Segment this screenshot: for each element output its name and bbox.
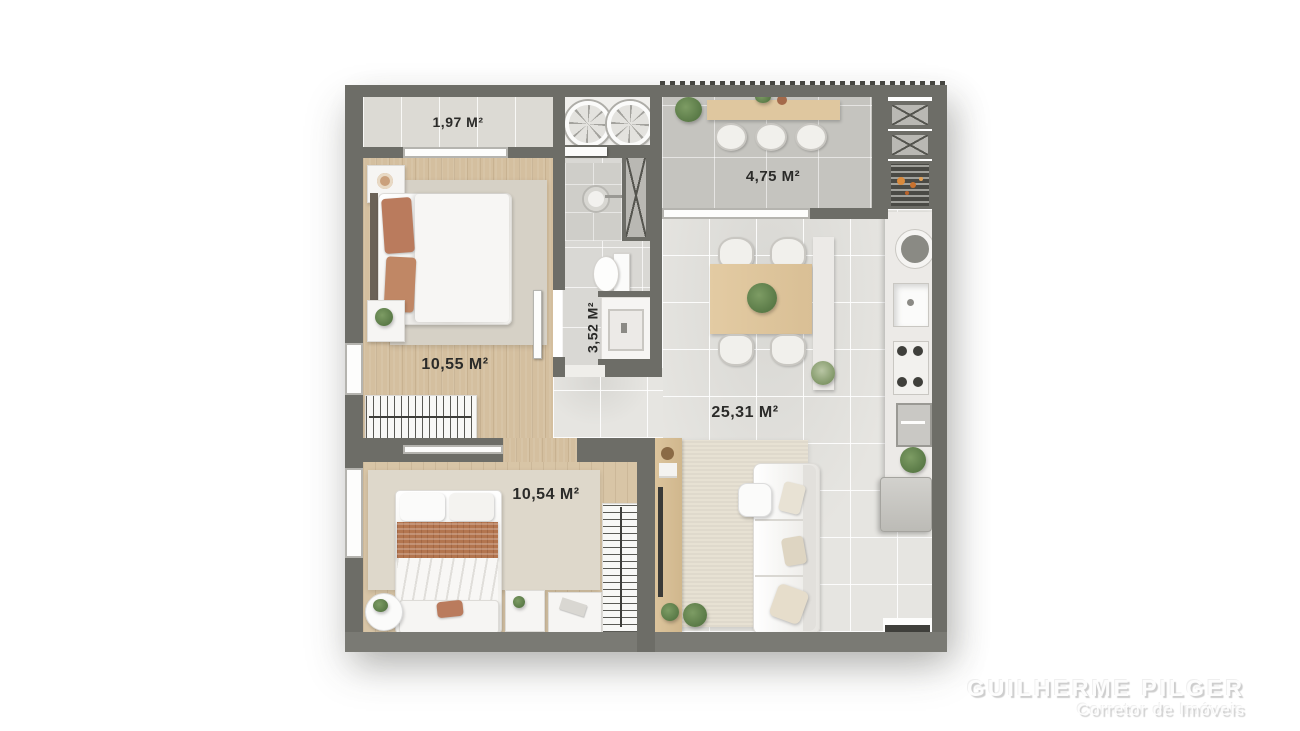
duct-shaft (888, 101, 932, 129)
dryer-drum (607, 101, 653, 147)
wardrobe-rail (369, 416, 471, 418)
shower-head (582, 185, 610, 213)
balcony-divider-wall (508, 147, 553, 158)
duct-shaft (622, 150, 650, 241)
kitchen-plant (900, 447, 926, 473)
bar-counter (707, 100, 840, 120)
wardrobe-rail (620, 507, 622, 627)
laundry-left-wall (553, 97, 565, 147)
bathroom-bottom-wall (605, 365, 662, 377)
plant (375, 308, 393, 326)
island-flowers (811, 361, 835, 385)
laundry-shelf (565, 147, 607, 156)
top-wall (345, 85, 947, 97)
terrace-sliding-door (662, 208, 810, 219)
entry-door-leaf (885, 625, 930, 632)
bedroom1-area-label: 10,55 M² (385, 355, 525, 375)
bathroom-area-label: 3,52 M² (565, 298, 620, 358)
bedroom2-window (345, 468, 363, 558)
watermark-name: GUILHERME PILGER (967, 676, 1245, 700)
oven-handle (901, 421, 925, 424)
bedroom1-right-wall (553, 147, 565, 290)
bench-pillow (436, 600, 464, 619)
bedroom2-sliding-door (403, 445, 503, 454)
sink-faucet (907, 299, 914, 306)
duct-shaft (888, 131, 932, 159)
terrace-plant (675, 97, 702, 122)
bed1-duvet (415, 194, 509, 322)
nightstand-mirror (377, 173, 393, 189)
watermark-title: Corretor de Imóveis (967, 700, 1245, 720)
living-area-label: 25,31 M² (675, 403, 815, 423)
burner (913, 346, 923, 356)
bedroom2-top-wall (577, 438, 637, 462)
counter-bowl (896, 230, 934, 268)
apartment-floorplan: 1,97 M² 4,75 M² 10,55 M² 3,52 M² 25,31 M… (345, 85, 947, 652)
side-table (738, 483, 772, 517)
table-centerpiece-plant (747, 283, 777, 313)
bar-stool (755, 123, 787, 151)
tv-screen (658, 487, 663, 597)
hall-wall-stub (553, 368, 565, 377)
bedroom1-window (345, 343, 363, 395)
bedroom2-round-table (365, 593, 403, 631)
vanity-faucet (621, 323, 627, 333)
bedroom2-wardrobe (602, 503, 642, 633)
bed2-knit-throw (397, 522, 498, 560)
bed2-pillow-white (400, 493, 445, 521)
dining-chair (770, 334, 806, 366)
bedroom1-right-wall (553, 357, 565, 368)
floorplan-page: 1,97 M² 4,75 M² 10,55 M² 3,52 M² 25,31 M… (0, 0, 1300, 731)
living-plant (683, 603, 707, 627)
bathroom-right-wall (650, 158, 662, 368)
bedroom2-area-label: 10,54 M² (475, 485, 617, 505)
laundry-right-wall (650, 97, 662, 158)
console-decor-round (661, 447, 674, 460)
grill (888, 161, 932, 209)
oven (896, 403, 932, 447)
bedroom2-living-wall (637, 438, 655, 652)
bar-stool (715, 123, 747, 151)
terrace-kitchen-wall (872, 97, 888, 210)
burner (897, 346, 907, 356)
terrace-area-label: 4,75 M² (693, 167, 853, 185)
balcony-sliding-door (403, 147, 508, 158)
toilet-bowl (593, 256, 619, 292)
bed2-duvet (397, 558, 498, 604)
console-decor-books (659, 463, 677, 476)
grill-coals (897, 177, 905, 185)
plant (513, 596, 525, 608)
bedroom1-wardrobe (365, 395, 477, 442)
washer-drum (565, 101, 611, 147)
balcony-area-label: 1,97 M² (363, 97, 553, 147)
console-plant (661, 603, 679, 621)
balcony-divider-wall (363, 147, 403, 158)
fridge (880, 477, 932, 532)
dining-chair (718, 334, 754, 366)
burner (913, 377, 923, 387)
bathroom-door-opening (565, 365, 605, 377)
bed1-pillow (381, 197, 415, 254)
burner (897, 377, 907, 387)
hall-floor (553, 368, 663, 438)
sofa-throw-pillow (781, 535, 808, 566)
bedroom1-door-leaf (533, 290, 542, 359)
bedroom2-doorway-floor (503, 438, 577, 462)
plant (373, 599, 388, 612)
bar-stool (795, 123, 827, 151)
right-wall (932, 97, 947, 632)
bedroom2-nightstand (505, 590, 545, 632)
watermark: GUILHERME PILGER Corretor de Imóveis (967, 676, 1245, 720)
